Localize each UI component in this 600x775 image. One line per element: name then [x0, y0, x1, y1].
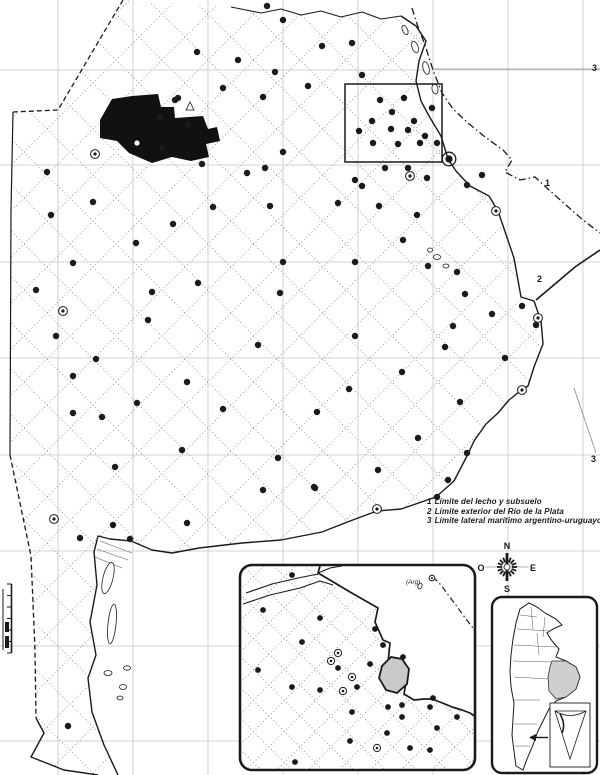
bahia-blanca-detail	[95, 541, 132, 700]
delta-islands	[186, 24, 449, 268]
legend-item: 1Límite del lecho y subsuelo	[427, 497, 600, 507]
compass-rose	[485, 553, 529, 581]
antarctica-inset	[550, 703, 590, 767]
legend-number: 1	[427, 497, 432, 507]
scale-bar	[3, 584, 12, 653]
legend-text: Límite lateral marítimo argentino-urugua…	[435, 516, 600, 525]
limit-number-labels: 3123	[537, 63, 597, 464]
compass-n: N	[504, 541, 511, 551]
svg-text:2: 2	[537, 274, 542, 284]
legend-number: 3	[427, 516, 432, 526]
legend-number: 2	[427, 507, 432, 517]
legend-text: Límite del lecho y subsuelo	[435, 497, 542, 506]
compass-o: O	[477, 563, 484, 573]
legend-item: 3Límite lateral marítimo argentino-urugu…	[427, 516, 600, 526]
highlighted-partido	[100, 94, 220, 163]
maritime-limit-lines	[412, 8, 600, 453]
legend-item: 2Límite exterior del Río de la Plata	[427, 507, 600, 517]
legend-text: Límite exterior del Río de la Plata	[435, 507, 564, 516]
svg-text:3: 3	[592, 63, 597, 73]
svg-text:3: 3	[591, 454, 596, 464]
arg-label: (Arg)	[406, 579, 420, 586]
scale-label-illegible	[5, 636, 9, 648]
province-map-canvas: 3123	[0, 0, 600, 775]
compass-s: S	[504, 584, 510, 594]
argentina-inset	[492, 597, 597, 773]
compass-e: E	[530, 563, 536, 573]
svg-text:1: 1	[545, 178, 550, 188]
map-page: 3123	[0, 0, 600, 775]
map-legend: 1Límite del lecho y subsuelo 2Límite ext…	[427, 497, 600, 526]
